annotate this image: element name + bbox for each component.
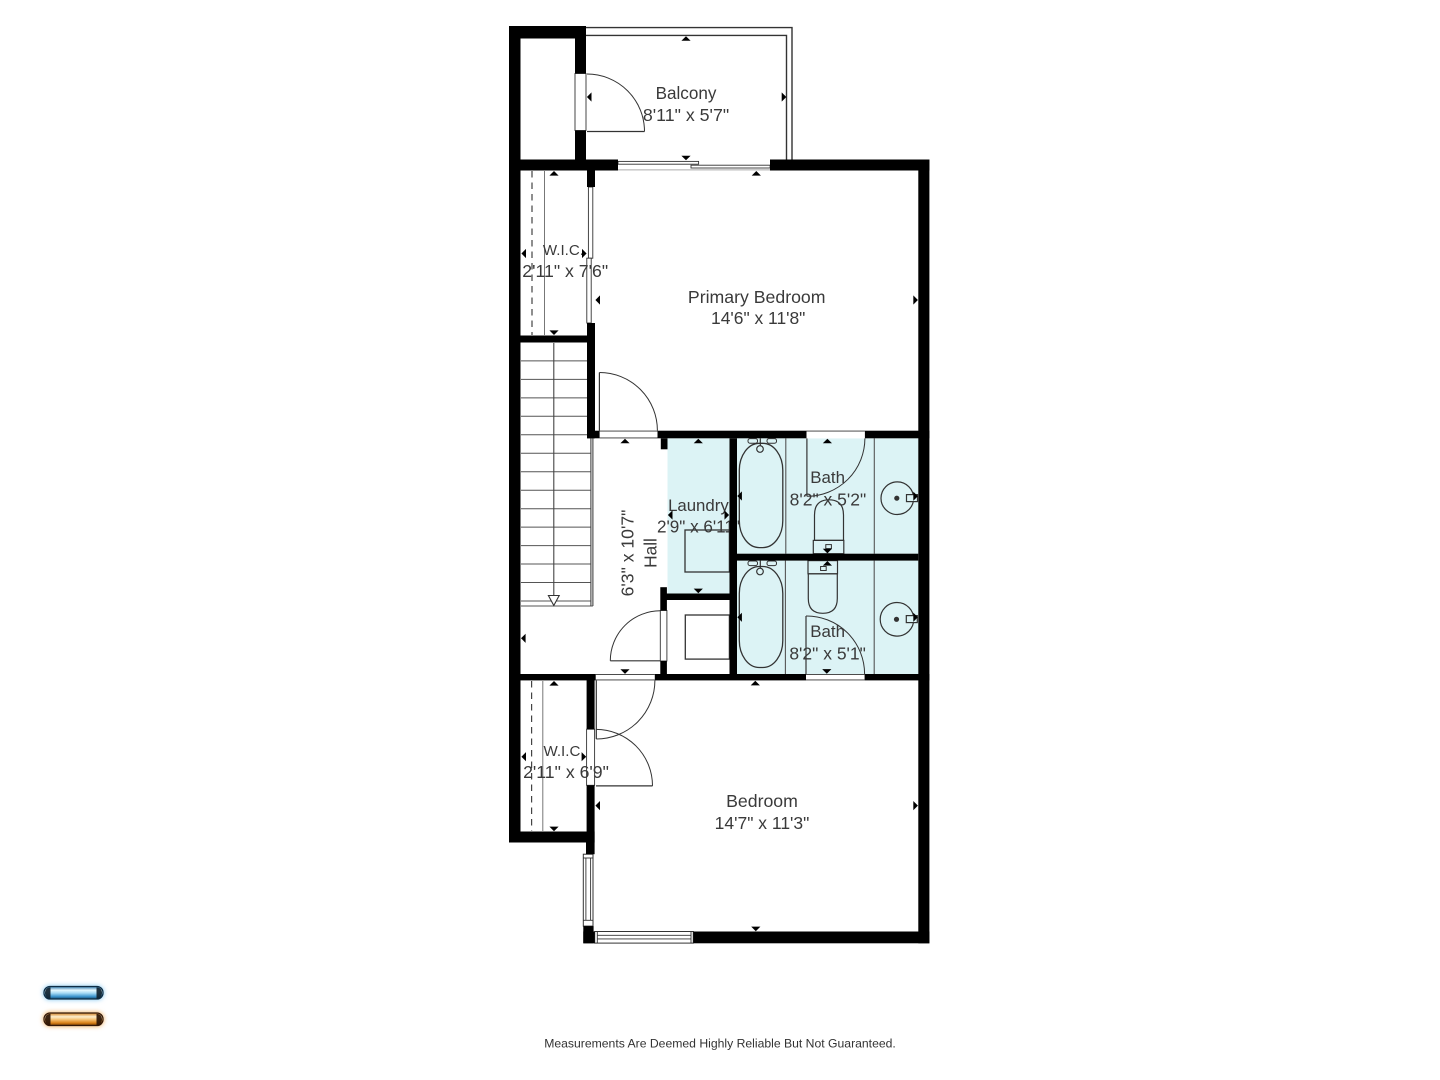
svg-text:8'2" x 5'2": 8'2" x 5'2": [790, 490, 867, 510]
svg-text:Laundry: Laundry: [668, 496, 729, 515]
svg-text:Measurements Are Deemed Highly: Measurements Are Deemed Highly Reliable …: [544, 1037, 896, 1051]
svg-text:Bedroom: Bedroom: [726, 791, 798, 811]
svg-text:14'6" x 11'8": 14'6" x 11'8": [711, 308, 805, 328]
svg-text:8'2" x 5'1": 8'2" x 5'1": [789, 644, 866, 664]
svg-text:2'11" x 7'6": 2'11" x 7'6": [522, 261, 608, 281]
svg-text:W.I.C.: W.I.C.: [543, 242, 584, 259]
svg-text:2'11" x 6'9": 2'11" x 6'9": [523, 762, 609, 782]
svg-text:14'7" x 11'3": 14'7" x 11'3": [715, 813, 810, 833]
svg-text:2'9" x 6'11": 2'9" x 6'11": [657, 518, 740, 537]
svg-text:Balcony: Balcony: [656, 84, 717, 103]
svg-text:8'11" x 5'7": 8'11" x 5'7": [643, 105, 729, 125]
svg-text:6'3" x 10'7": 6'3" x 10'7": [618, 510, 638, 597]
svg-text:Hall: Hall: [641, 538, 661, 568]
svg-text:Bath: Bath: [810, 622, 845, 641]
svg-text:Bath: Bath: [810, 468, 845, 487]
svg-text:Primary Bedroom: Primary Bedroom: [688, 287, 826, 307]
svg-text:W.I.C.: W.I.C.: [543, 743, 584, 760]
